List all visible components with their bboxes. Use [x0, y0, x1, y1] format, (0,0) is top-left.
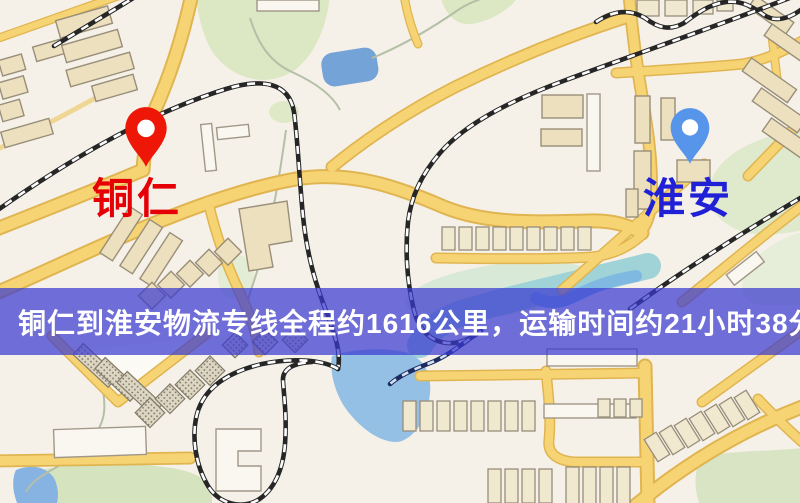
destination-label: 淮安 [643, 178, 733, 220]
origin-label: 铜仁 [92, 178, 182, 220]
destination-pin-icon [667, 107, 713, 165]
destination-marker [667, 107, 713, 165]
route-banner-text: 铜仁到淮安物流专线全程约1616公里，运输时间约21小时38分钟. [0, 302, 800, 342]
route-banner: 铜仁到淮安物流专线全程约1616公里，运输时间约21小时38分钟. [0, 288, 800, 355]
origin-pin-icon [123, 104, 169, 170]
origin-marker [123, 104, 169, 170]
map-image: 铜仁 淮安 铜仁到淮安物流专线全程约1616公里，运输时间约21小时38分钟. [0, 0, 800, 503]
map-canvas [0, 0, 800, 503]
